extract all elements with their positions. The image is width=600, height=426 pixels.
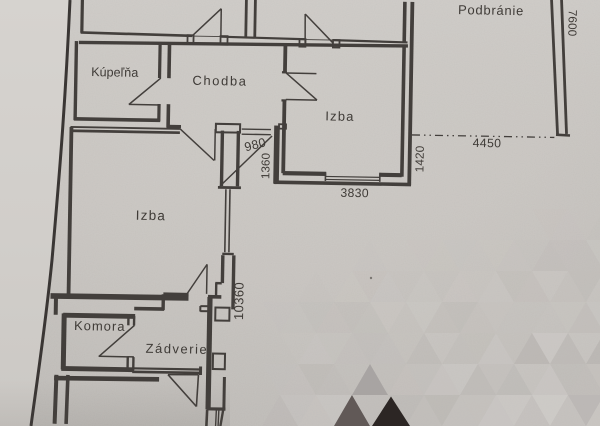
svg-text:Izba: Izba [136,208,167,224]
svg-text:7600: 7600 [565,10,579,37]
svg-text:Chodba: Chodba [192,73,247,89]
svg-text:4450: 4450 [473,136,502,150]
svg-text:1360: 1360 [259,153,272,179]
svg-text:Izba: Izba [325,108,355,124]
svg-text:Podbránie: Podbránie [458,2,524,18]
svg-text:Zádverie: Zádverie [145,341,208,357]
svg-text:3830: 3830 [340,186,369,200]
svg-text:10360: 10360 [231,282,247,320]
svg-text:1420: 1420 [412,145,426,172]
svg-text:Komora: Komora [74,318,126,334]
svg-text:Kúpeľňa: Kúpeľňa [91,65,138,80]
